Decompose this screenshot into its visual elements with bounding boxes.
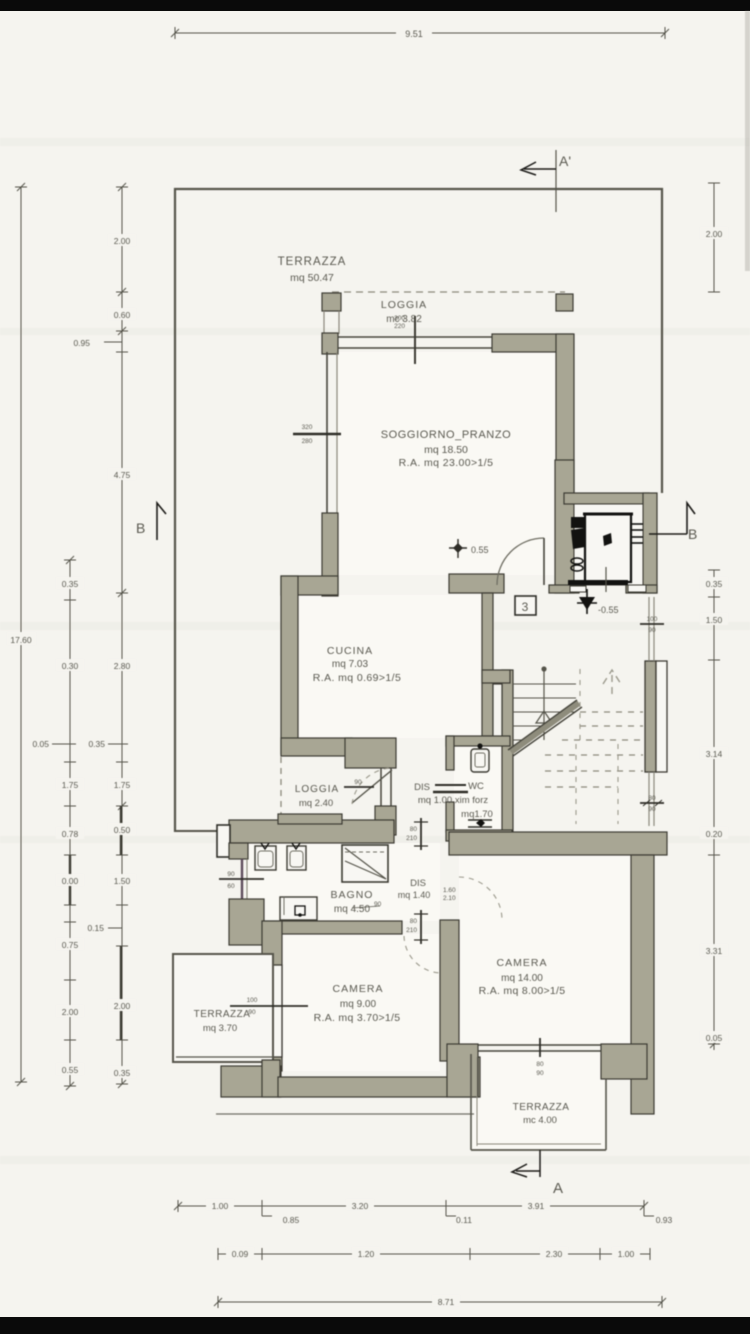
svg-text:3.14: 3.14 [706,749,723,759]
svg-text:mq 1.00 xim forz: mq 1.00 xim forz [418,795,488,806]
svg-text:2.00: 2.00 [62,1007,79,1017]
svg-text:0.95: 0.95 [73,338,90,348]
svg-text:mq 4.50: mq 4.50 [334,904,371,915]
svg-text:DIS: DIS [410,878,426,889]
svg-text:210: 210 [406,927,417,934]
svg-text:0.30: 0.30 [62,661,79,671]
svg-text:BAGNO: BAGNO [331,889,374,901]
svg-text:0.55: 0.55 [471,545,489,555]
svg-text:0.05: 0.05 [706,1033,723,1043]
svg-text:LOGGIA: LOGGIA [295,784,339,795]
svg-text:3.91: 3.91 [528,1201,545,1211]
svg-text:mq 50.47: mq 50.47 [290,272,334,284]
svg-text:TERRAZZA: TERRAZZA [194,1009,251,1020]
svg-text:0.35: 0.35 [62,579,79,589]
svg-text:3: 3 [522,600,529,614]
svg-text:WC: WC [468,781,484,792]
svg-text:0.93: 0.93 [656,1215,673,1225]
svg-text:mq 9.00: mq 9.00 [340,999,377,1010]
svg-text:0.50: 0.50 [114,825,131,835]
svg-text:0.75: 0.75 [62,940,79,950]
svg-text:R.A. mq 8.00>1/5: R.A. mq 8.00>1/5 [479,985,566,997]
svg-text:1.50: 1.50 [114,876,131,886]
svg-text:220: 220 [394,323,405,330]
svg-text:90: 90 [227,871,235,878]
svg-text:3.31: 3.31 [706,946,723,956]
svg-text:4.75: 4.75 [114,470,131,480]
svg-text:0.78: 0.78 [62,829,79,839]
svg-text:90: 90 [536,1070,544,1077]
svg-text:80: 80 [410,918,418,925]
svg-text:R.A. mq 3.70>1/5: R.A. mq 3.70>1/5 [314,1012,401,1024]
svg-text:2.00: 2.00 [706,229,723,239]
svg-text:0.09: 0.09 [232,1249,249,1259]
svg-text:mq 18.50: mq 18.50 [424,444,468,456]
svg-text:1.75: 1.75 [114,780,131,790]
svg-text:mq 7.03: mq 7.03 [332,659,369,670]
svg-text:R.A. mq 0.69>1/5: R.A. mq 0.69>1/5 [313,672,401,684]
svg-text:LOGGIA: LOGGIA [381,299,427,311]
svg-text:280: 280 [302,438,313,445]
svg-text:1.75: 1.75 [62,780,79,790]
svg-text:80: 80 [648,795,656,802]
svg-text:mq1.70: mq1.70 [461,809,493,820]
svg-text:90: 90 [648,627,656,634]
svg-text:0.35: 0.35 [114,1068,131,1078]
svg-text:8.71: 8.71 [438,1297,455,1307]
svg-text:80: 80 [410,826,418,833]
svg-text:R.A. mq 23.00>1/5: R.A. mq 23.00>1/5 [399,457,494,469]
svg-text:80: 80 [536,1061,544,1068]
svg-text:SOGGIORNO_PRANZO: SOGGIORNO_PRANZO [381,429,512,441]
svg-text:9.51: 9.51 [405,29,423,39]
svg-text:100: 100 [247,997,258,1004]
svg-text:0.35: 0.35 [706,579,723,589]
svg-text:0.05: 0.05 [32,739,49,749]
svg-text:0.00: 0.00 [62,876,79,886]
svg-text:0.11: 0.11 [456,1215,472,1225]
svg-text:0.35: 0.35 [88,739,105,749]
svg-text:2.10: 2.10 [443,895,456,902]
svg-text:210: 210 [406,835,417,842]
svg-text:mq 3.70: mq 3.70 [203,1023,237,1034]
svg-text:B: B [136,520,145,536]
svg-text:90: 90 [648,806,656,813]
svg-text:100: 100 [647,616,658,623]
svg-text:2.30: 2.30 [546,1249,563,1259]
svg-text:CUCINA: CUCINA [327,645,373,657]
svg-text:90: 90 [354,779,362,786]
svg-text:3.20: 3.20 [352,1201,369,1211]
svg-text:A: A [553,1180,563,1197]
svg-text:TERRAZZA: TERRAZZA [513,1102,570,1113]
svg-text:CAMERA: CAMERA [497,957,548,969]
svg-text:0.20: 0.20 [706,829,723,839]
svg-text:0.60: 0.60 [114,310,131,320]
svg-text:2.00: 2.00 [114,1001,131,1011]
svg-text:1.00: 1.00 [618,1249,635,1259]
svg-text:0.55: 0.55 [62,1065,79,1075]
svg-text:CAMERA: CAMERA [333,983,384,995]
svg-text:mc 4.00: mc 4.00 [523,1115,557,1126]
svg-text:1.50: 1.50 [706,615,723,625]
svg-text:60: 60 [227,883,235,890]
svg-text:mq 2.40: mq 2.40 [299,798,333,809]
svg-text:mq 1.40: mq 1.40 [398,890,431,900]
svg-text:300: 300 [394,315,405,322]
svg-text:B: B [688,526,697,542]
svg-text:2.80: 2.80 [114,661,131,671]
svg-text:17.60: 17.60 [10,635,32,645]
svg-text:DIS: DIS [414,782,430,793]
svg-text:mq 14.00: mq 14.00 [501,973,543,984]
svg-text:90: 90 [248,1009,256,1016]
svg-text:0.85: 0.85 [283,1215,300,1225]
svg-text:1.00: 1.00 [212,1201,229,1211]
svg-text:0.15: 0.15 [87,923,104,933]
svg-text:90: 90 [374,901,382,908]
svg-text:-0.55: -0.55 [598,605,619,615]
svg-text:A': A' [559,153,571,169]
svg-text:TERRAZZA: TERRAZZA [278,256,347,268]
svg-text:320: 320 [302,424,313,431]
svg-text:1.60: 1.60 [443,887,456,894]
svg-text:2.00: 2.00 [114,236,131,246]
svg-text:1.20: 1.20 [358,1249,375,1259]
